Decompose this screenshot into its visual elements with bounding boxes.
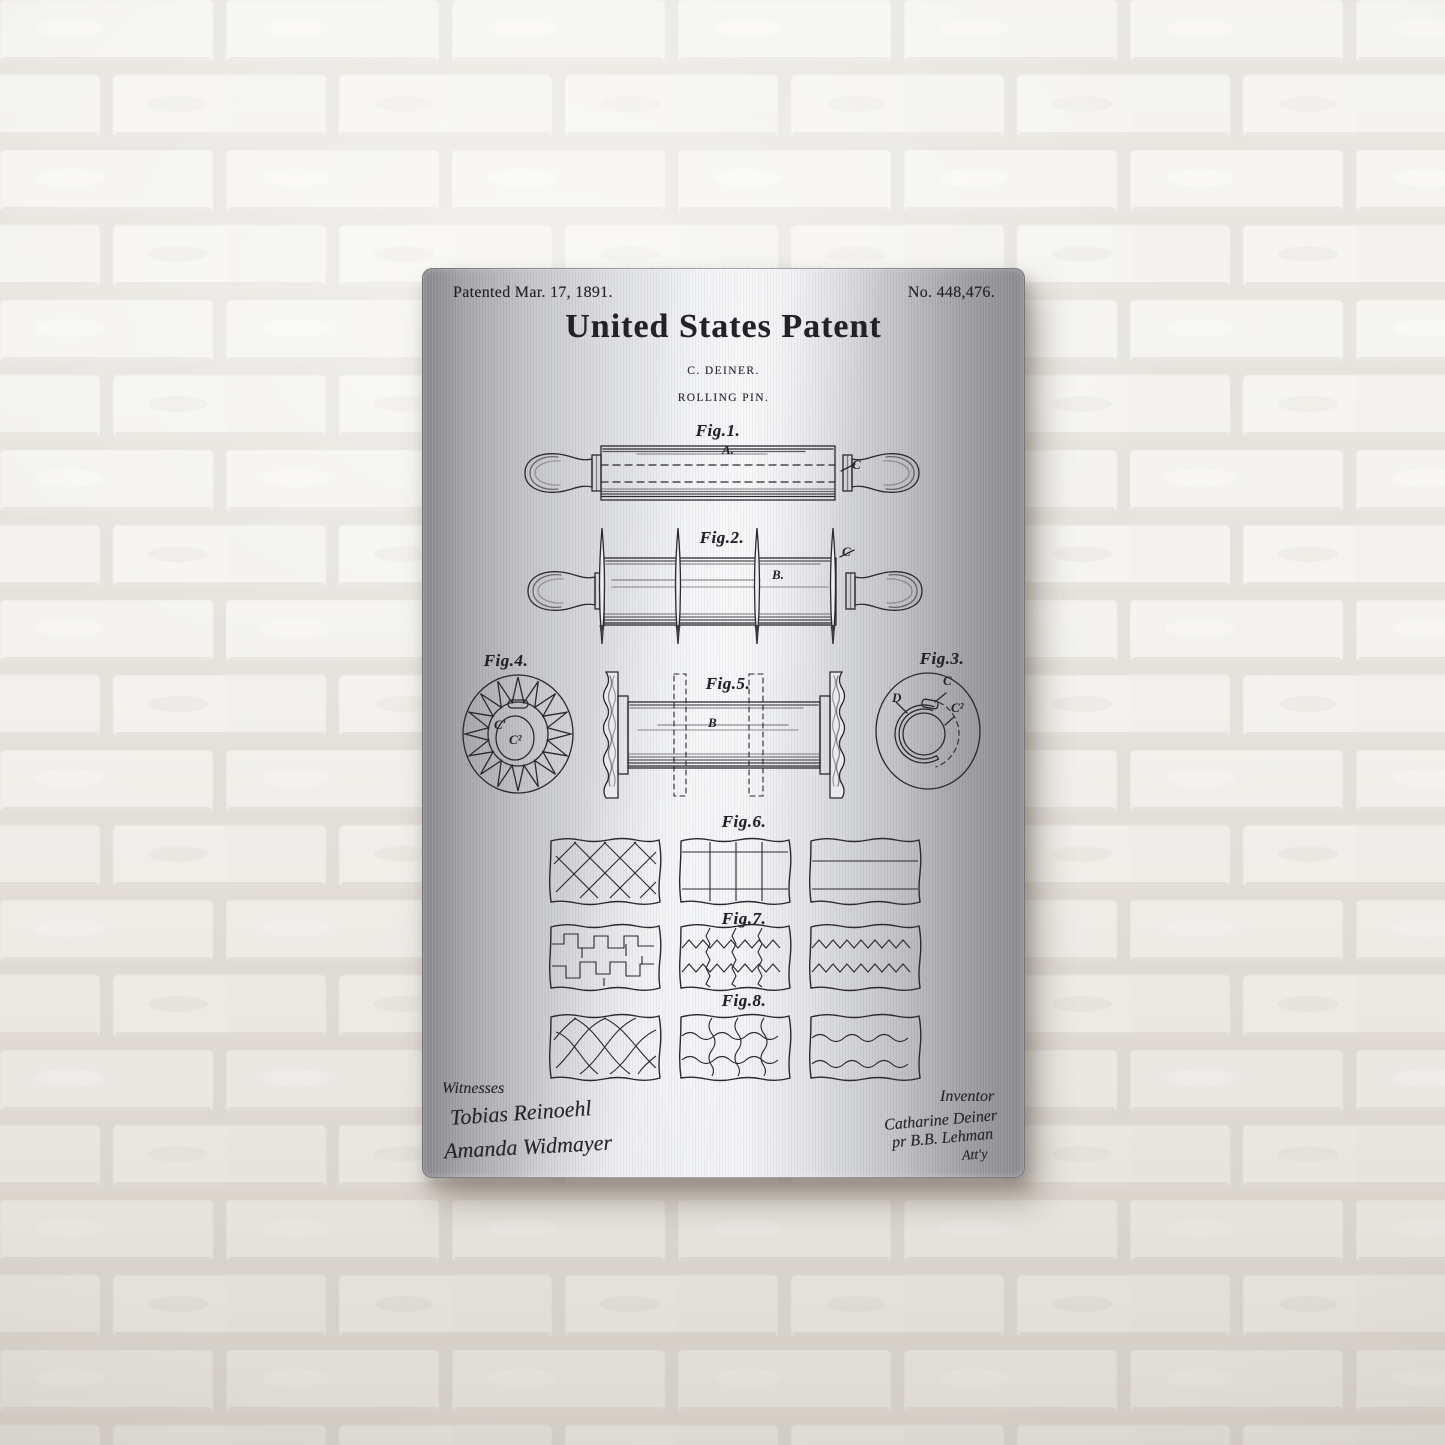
fig3-label: Fig.3. bbox=[920, 649, 965, 669]
witness-signature-1: Tobias Reinoehl bbox=[449, 1095, 592, 1131]
fig7-pattern-stepped bbox=[546, 920, 664, 994]
fig4-label: Fig.4. bbox=[484, 651, 529, 671]
patent-number: No. 448,476. bbox=[908, 284, 995, 302]
fig8-pattern-wavy-grid bbox=[676, 1010, 794, 1084]
patent-subject-line: ROLLING PIN. bbox=[422, 392, 1025, 404]
fig6-pattern-diamond bbox=[546, 834, 664, 908]
fig7-pattern-zigzag-lines bbox=[806, 920, 924, 994]
fig3-drawing bbox=[866, 668, 992, 798]
fig6-pattern-lines bbox=[806, 834, 924, 908]
fig5-drawing bbox=[598, 668, 850, 802]
patent-title: United States Patent bbox=[422, 308, 1025, 346]
attorney-title: Att'y bbox=[961, 1147, 988, 1165]
photo-scene: Patented Mar. 17, 1891. No. 448,476. Uni… bbox=[0, 0, 1445, 1445]
fig7-pattern-zigzag-grid bbox=[676, 920, 794, 994]
patent-date: Patented Mar. 17, 1891. bbox=[453, 284, 613, 302]
fig6-label: Fig.6. bbox=[722, 812, 767, 832]
inventor-label: Inventor bbox=[940, 1088, 994, 1106]
witnesses-label: Witnesses bbox=[442, 1080, 504, 1098]
fig8-label: Fig.8. bbox=[722, 991, 767, 1011]
witness-signature-2: Amanda Widmayer bbox=[443, 1130, 612, 1165]
patent-inventor-line: C. DEINER. bbox=[422, 365, 1025, 377]
fig2-drawing bbox=[520, 524, 930, 648]
patent-print-panel: Patented Mar. 17, 1891. No. 448,476. Uni… bbox=[422, 268, 1025, 1178]
fig8-pattern-curvy bbox=[546, 1010, 664, 1084]
fig4-drawing bbox=[458, 672, 580, 798]
fig1-drawing bbox=[517, 436, 927, 510]
fig8-pattern-wavy-lines bbox=[806, 1010, 924, 1084]
fig6-pattern-grid bbox=[676, 834, 794, 908]
